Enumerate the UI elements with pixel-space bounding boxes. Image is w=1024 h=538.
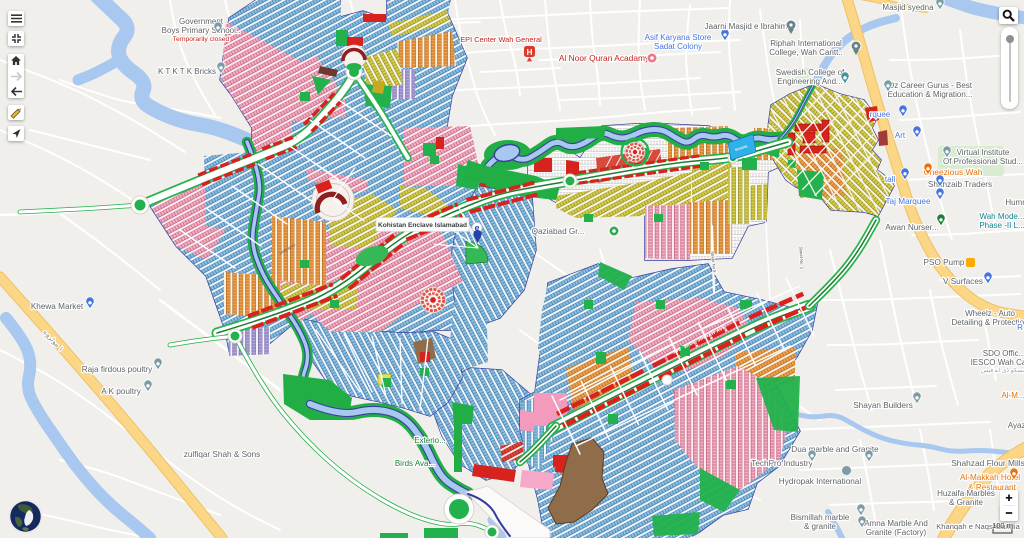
svg-text:Birds Ava...: Birds Ava...	[395, 459, 435, 468]
svg-text:IESCO Wah Can...: IESCO Wah Can...	[971, 358, 1024, 367]
svg-text:Boys Primary School..: Boys Primary School..	[162, 26, 241, 35]
svg-text:Swedish College of: Swedish College of	[776, 68, 845, 77]
svg-text:& granite: & granite	[804, 522, 837, 531]
svg-text:Amna Marble And: Amna Marble And	[864, 519, 928, 528]
svg-text:Huzaifa Marbles: Huzaifa Marbles	[937, 489, 995, 498]
svg-text:TechPro Industry: TechPro Industry	[751, 459, 813, 468]
svg-text:Sadat Colony: Sadat Colony	[654, 42, 702, 51]
svg-text:Engineering And...: Engineering And...	[777, 77, 842, 86]
svg-text:Art: Art	[895, 131, 906, 140]
svg-text:Bismillah marble: Bismillah marble	[791, 513, 850, 522]
svg-text:zulfiqar Shah & Sons: zulfiqar Shah & Sons	[184, 450, 260, 459]
svg-text:Khewa Market: Khewa Market	[31, 302, 84, 311]
svg-text:PSO Pump: PSO Pump	[924, 258, 965, 267]
svg-text:Masjid syedna: Masjid syedna	[882, 3, 934, 12]
svg-text:Exterio...: Exterio...	[414, 436, 446, 445]
svg-text:Enc...: Enc...	[765, 125, 780, 131]
svg-text:V Surfaces: V Surfaces	[943, 277, 983, 286]
svg-text:Wah Mode...: Wah Mode...	[979, 212, 1024, 221]
svg-text:Taj Marquee: Taj Marquee	[885, 197, 931, 206]
svg-text:EPI Center Wah General: EPI Center Wah General	[460, 35, 542, 44]
svg-text:A K poultry: A K poultry	[101, 387, 141, 396]
svg-text:Qaziabad Gr...: Qaziabad Gr...	[532, 227, 585, 236]
svg-text:Raja firdous poultry: Raja firdous poultry	[82, 365, 153, 374]
svg-text:Al-M...: Al-M...	[1001, 391, 1024, 400]
svg-text:Ayaz...: Ayaz...	[1008, 421, 1024, 430]
svg-text:tall: tall	[885, 175, 895, 184]
svg-text:Al Noor Quran Acadamy: Al Noor Quran Acadamy	[559, 53, 650, 63]
svg-text:Asif Karyana Store: Asif Karyana Store	[645, 33, 712, 42]
svg-text:Wheelz - Auto: Wheelz - Auto	[965, 309, 1015, 318]
svg-text:Granite (Factory): Granite (Factory)	[866, 528, 927, 537]
svg-text:R: R	[1017, 323, 1023, 332]
svg-text:H: H	[527, 48, 533, 57]
svg-text:rquee: rquee	[870, 110, 891, 119]
svg-text:Detailing & Protection: Detailing & Protection	[952, 318, 1024, 327]
svg-text:Oz Career Gurus - Best: Oz Career Gurus - Best	[888, 81, 973, 90]
svg-text:Temporarily closed: Temporarily closed	[173, 36, 230, 43]
svg-text:ریسکو ڈی اے فیس: ریسکو ڈی اے فیس	[981, 367, 1024, 374]
svg-text:Humn: Humn	[1005, 198, 1024, 207]
svg-text:Hydropak International: Hydropak International	[779, 477, 862, 486]
svg-text:Shayan Builders: Shayan Builders	[853, 401, 913, 410]
svg-text:College, Wah Cantt..: College, Wah Cantt..	[769, 48, 843, 57]
svg-text:K T K T K Bricks: K T K T K Bricks	[158, 67, 216, 76]
svg-text:SDO Offic...: SDO Offic...	[983, 349, 1024, 358]
svg-text:Awan Nurser...: Awan Nurser...	[885, 223, 939, 232]
svg-text:Virtual Institute: Virtual Institute	[957, 148, 1010, 157]
svg-text:Education & Migration...: Education & Migration...	[888, 90, 973, 99]
svg-text:Shahzad Flour Mills: Shahzad Flour Mills	[951, 458, 1024, 468]
svg-text:Phase -II L...: Phase -II L...	[979, 221, 1024, 230]
svg-text:Kohistan Enclave Islamabad: Kohistan Enclave Islamabad	[378, 222, 467, 229]
svg-text:Riphah International: Riphah International	[770, 39, 842, 48]
svg-text:Jaarni Masjid e Ibrahim: Jaarni Masjid e Ibrahim	[705, 22, 788, 31]
svg-text:& Granite: & Granite	[949, 498, 983, 507]
svg-text:Of Professional Stud...: Of Professional Stud...	[943, 157, 1023, 166]
